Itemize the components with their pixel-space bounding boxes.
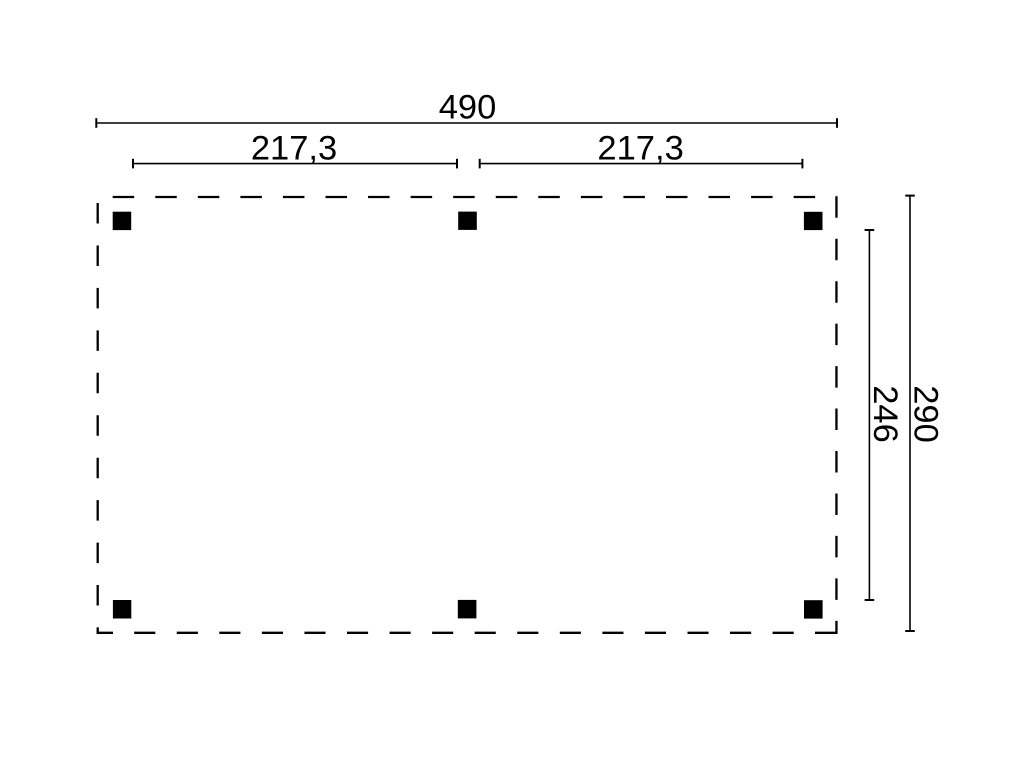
svg-text:217,3: 217,3 bbox=[251, 130, 337, 168]
svg-text:290: 290 bbox=[906, 385, 944, 443]
svg-text:217,3: 217,3 bbox=[597, 130, 683, 168]
svg-text:490: 490 bbox=[439, 89, 497, 127]
svg-text:246: 246 bbox=[866, 385, 904, 443]
